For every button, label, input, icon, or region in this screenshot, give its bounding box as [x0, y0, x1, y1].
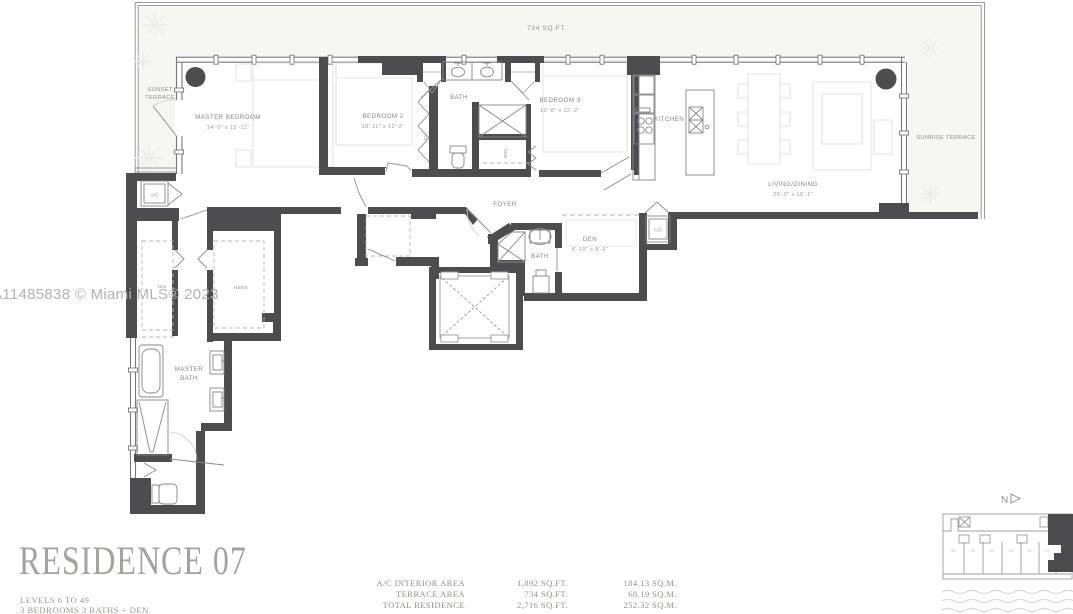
svg-text:DEN: DEN: [583, 236, 597, 243]
svg-text:2,716 SQ.FT.: 2,716 SQ.FT.: [517, 600, 568, 610]
svg-text:WIC: WIC: [503, 148, 509, 158]
svg-text:03: 03: [1008, 548, 1014, 553]
svg-text:734 SQ.FT.: 734 SQ.FT.: [527, 25, 567, 32]
svg-text:N: N: [1001, 495, 1008, 506]
svg-text:8'-10" x 8'-9": 8'-10" x 8'-9": [572, 247, 608, 253]
svg-text:734 SQ.FT.: 734 SQ.FT.: [524, 589, 568, 599]
svg-text:68.19 SQ.M.: 68.19 SQ.M.: [628, 589, 677, 599]
svg-text:A/C INTERIOR AREA: A/C INTERIOR AREA: [377, 578, 466, 588]
svg-text:LIVING/DINING: LIVING/DINING: [768, 181, 818, 188]
svg-text:BATH: BATH: [450, 94, 468, 101]
svg-text:HERS: HERS: [234, 285, 248, 291]
svg-text:BEDROOM 2: BEDROOM 2: [362, 113, 403, 120]
svg-text:184.13 SQ.M.: 184.13 SQ.M.: [623, 578, 677, 588]
svg-text:1,892 SQ.FT.: 1,892 SQ.FT.: [517, 578, 568, 588]
svg-text:BEDROOM 3: BEDROOM 3: [539, 97, 580, 104]
svg-text:TOTAL RESIDENCE: TOTAL RESIDENCE: [383, 600, 465, 610]
svg-text:10'-11" x 12'-2": 10'-11" x 12'-2": [362, 124, 405, 130]
svg-text:04: 04: [989, 548, 995, 553]
svg-text:BATH: BATH: [531, 253, 549, 260]
svg-text:SUNRISE TERRACE: SUNRISE TERRACE: [916, 135, 975, 141]
svg-text:01: 01: [1044, 548, 1050, 553]
svg-text:MASTER BEDROOM: MASTER BEDROOM: [195, 114, 261, 121]
svg-text:26'-0" x 16'-1": 26'-0" x 16'-1": [773, 192, 813, 198]
svg-text:02: 02: [1027, 548, 1033, 553]
svg-text:TERRACE AREA: TERRACE AREA: [396, 589, 465, 599]
svg-text:10'-8" x 12'-2": 10'-8" x 12'-2": [540, 108, 580, 114]
svg-text:A11485838 © Miami MLS® 2023: A11485838 © Miami MLS® 2023: [0, 286, 219, 303]
svg-text:RESIDENCE 07: RESIDENCE 07: [19, 537, 247, 583]
svg-text:05: 05: [950, 548, 956, 553]
svg-text:MASTER: MASTER: [175, 366, 204, 373]
svg-text:LEVELS 6 TO 49: LEVELS 6 TO 49: [20, 595, 89, 605]
svg-text:FOYER: FOYER: [493, 201, 517, 208]
svg-text:SUNSET: SUNSET: [147, 87, 172, 93]
svg-text:14'-5" x 15'-11": 14'-5" x 15'-11": [207, 125, 250, 131]
svg-text:A/C: A/C: [150, 193, 159, 199]
svg-text:A/C: A/C: [654, 228, 663, 234]
svg-text:3 BEDROOMS 3 BATHS + DEN: 3 BEDROOMS 3 BATHS + DEN: [20, 605, 149, 614]
svg-text:KITCHEN: KITCHEN: [654, 116, 684, 123]
svg-text:05: 05: [970, 548, 976, 553]
svg-text:252.32 SQ.M.: 252.32 SQ.M.: [623, 600, 677, 610]
svg-text:BATH: BATH: [180, 375, 198, 382]
